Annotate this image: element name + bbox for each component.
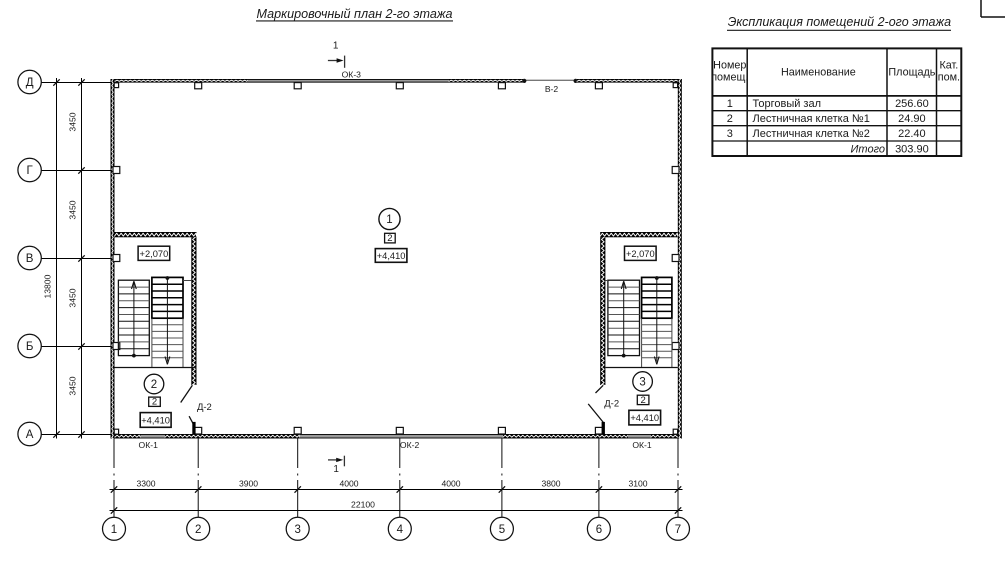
- svg-text:2: 2: [152, 397, 157, 408]
- svg-text:ОК-1: ОК-1: [632, 440, 652, 450]
- svg-text:5: 5: [499, 524, 505, 536]
- svg-text:1: 1: [333, 464, 339, 475]
- svg-text:24.90: 24.90: [898, 113, 926, 125]
- svg-text:Лестничная клетка №1: Лестничная клетка №1: [753, 113, 870, 125]
- svg-text:Экспликация помещений 2-ого эт: Экспликация помещений 2-ого этажа: [728, 15, 951, 29]
- svg-text:3450: 3450: [68, 376, 78, 395]
- svg-text:Кат.: Кат.: [939, 60, 958, 72]
- svg-text:ОК-3: ОК-3: [342, 69, 362, 79]
- svg-text:2: 2: [387, 233, 392, 244]
- svg-text:В-2: В-2: [545, 84, 559, 94]
- svg-text:Итого: Итого: [851, 143, 885, 155]
- svg-text:Номер: Номер: [713, 60, 746, 72]
- svg-text:3: 3: [639, 377, 645, 389]
- svg-text:3100: 3100: [628, 479, 647, 489]
- svg-text:Наименование: Наименование: [781, 67, 856, 79]
- svg-text:13800: 13800: [42, 274, 52, 298]
- svg-text:Г: Г: [26, 165, 33, 177]
- svg-text:3450: 3450: [68, 288, 78, 307]
- svg-text:Лестничная клетка №2: Лестничная клетка №2: [753, 128, 870, 140]
- svg-text:пом.: пом.: [938, 72, 960, 84]
- svg-text:А: А: [26, 429, 34, 441]
- svg-text:6: 6: [596, 524, 602, 536]
- svg-text:ОК-1: ОК-1: [139, 440, 159, 450]
- svg-text:Д: Д: [26, 77, 34, 89]
- svg-text:7: 7: [675, 524, 681, 536]
- svg-text:+4,410: +4,410: [377, 251, 406, 261]
- svg-text:1: 1: [333, 41, 339, 52]
- svg-text:4000: 4000: [441, 479, 460, 489]
- svg-text:В: В: [26, 253, 34, 265]
- svg-text:+2,070: +2,070: [626, 249, 655, 259]
- svg-text:3: 3: [294, 524, 300, 536]
- svg-text:1: 1: [386, 214, 392, 226]
- svg-text:Д-2: Д-2: [197, 402, 212, 413]
- svg-text:4000: 4000: [339, 479, 358, 489]
- svg-text:3450: 3450: [68, 200, 78, 219]
- svg-text:+2,070: +2,070: [140, 249, 169, 259]
- svg-text:+4,410: +4,410: [141, 415, 170, 425]
- svg-text:+4,410: +4,410: [630, 413, 659, 423]
- svg-text:Маркировочный план 2-го этажа: Маркировочный план 2-го этажа: [256, 7, 452, 21]
- svg-text:помещ.: помещ.: [711, 72, 748, 84]
- svg-text:Площадь: Площадь: [888, 67, 935, 79]
- svg-text:2: 2: [727, 113, 733, 125]
- svg-text:Б: Б: [26, 341, 34, 353]
- svg-text:Д-2: Д-2: [604, 399, 619, 410]
- svg-text:22.40: 22.40: [898, 128, 926, 140]
- svg-text:1: 1: [111, 524, 117, 536]
- svg-text:ОК-2: ОК-2: [400, 440, 420, 450]
- svg-text:1: 1: [727, 98, 733, 110]
- svg-text:2: 2: [195, 524, 201, 536]
- svg-text:3450: 3450: [68, 112, 78, 131]
- svg-text:3800: 3800: [541, 479, 560, 489]
- svg-text:Торговый зал: Торговый зал: [753, 98, 822, 110]
- svg-text:4: 4: [397, 524, 404, 536]
- svg-text:2: 2: [640, 395, 645, 406]
- svg-text:303.90: 303.90: [895, 143, 929, 155]
- svg-text:3300: 3300: [136, 479, 155, 489]
- svg-text:3900: 3900: [239, 479, 258, 489]
- svg-text:2: 2: [151, 379, 157, 391]
- svg-text:3: 3: [727, 128, 733, 140]
- svg-text:22100: 22100: [351, 499, 375, 509]
- svg-text:256.60: 256.60: [895, 98, 929, 110]
